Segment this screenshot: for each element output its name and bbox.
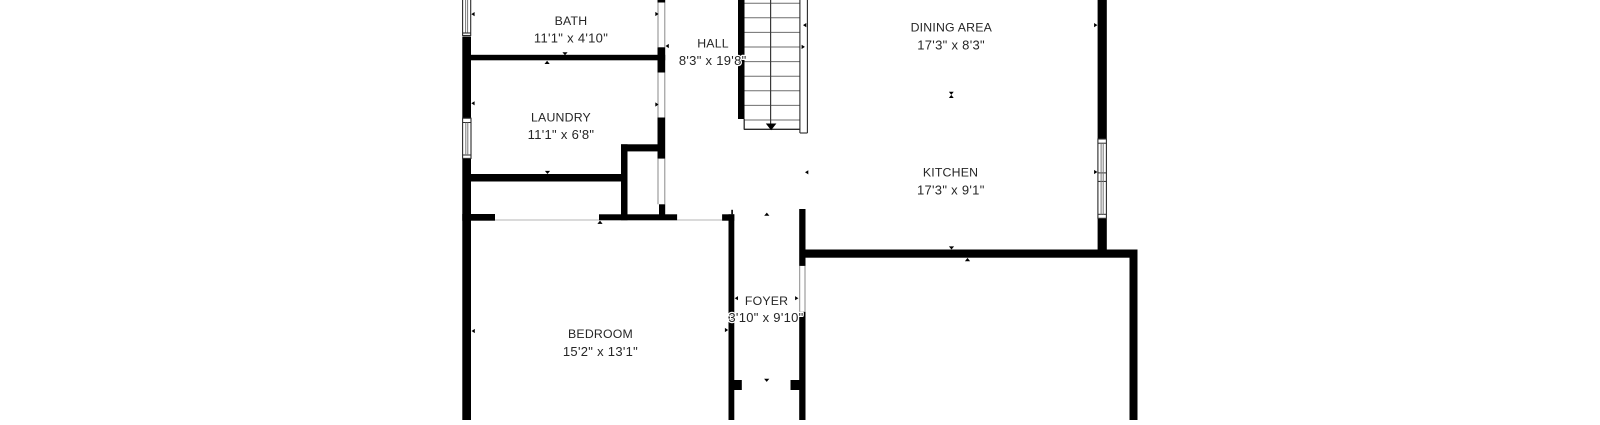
- svg-text:BATH: BATH: [555, 14, 588, 28]
- svg-text:BEDROOM: BEDROOM: [568, 327, 633, 341]
- svg-text:11'1" x 6'8": 11'1" x 6'8": [528, 127, 595, 142]
- svg-text:LAUNDRY: LAUNDRY: [531, 111, 591, 125]
- svg-text:17'3" x 9'1": 17'3" x 9'1": [917, 182, 985, 197]
- svg-text:KITCHEN: KITCHEN: [923, 166, 978, 180]
- svg-text:15'2" x 13'1": 15'2" x 13'1": [563, 344, 638, 359]
- svg-text:8'3" x 19'8": 8'3" x 19'8": [679, 53, 747, 68]
- svg-text:11'1" x 4'10": 11'1" x 4'10": [534, 31, 608, 46]
- svg-text:3'10" x 9'10": 3'10" x 9'10": [728, 310, 803, 325]
- svg-text:FOYER: FOYER: [745, 294, 788, 308]
- svg-text:DINING AREA: DINING AREA: [911, 21, 993, 35]
- svg-text:HALL: HALL: [697, 37, 729, 51]
- svg-text:17'3" x 8'3": 17'3" x 8'3": [917, 38, 985, 53]
